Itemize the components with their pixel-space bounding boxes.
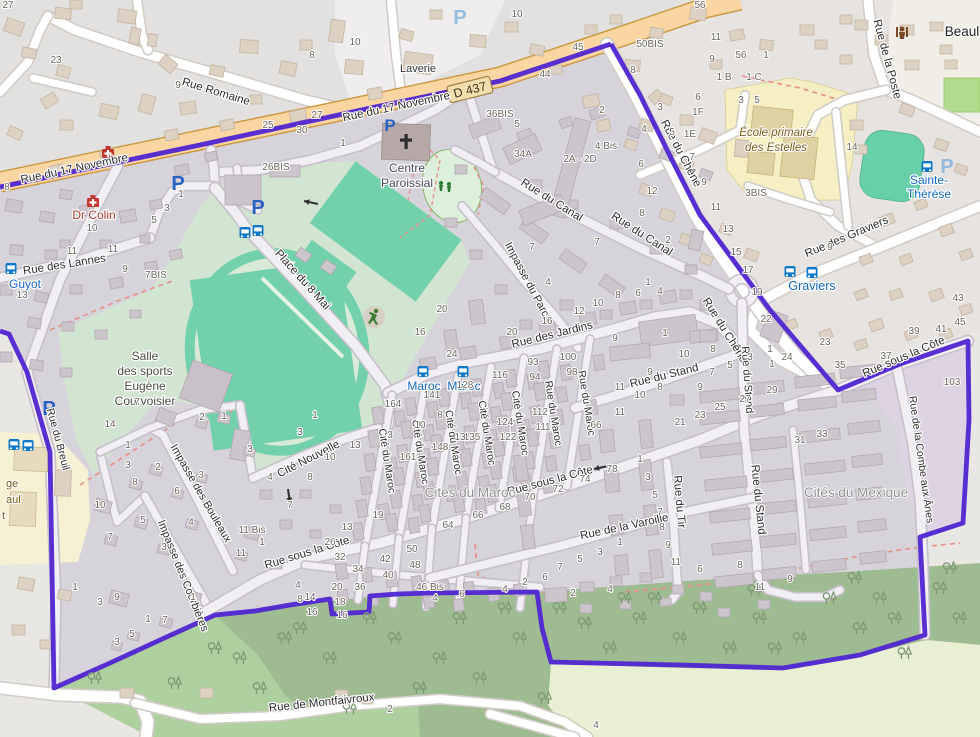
svg-text:Centre: Centre: [389, 161, 425, 175]
svg-text:10: 10: [634, 390, 646, 401]
svg-text:27: 27: [311, 110, 323, 121]
svg-text:1E: 1E: [684, 129, 697, 140]
svg-text:20: 20: [436, 304, 448, 315]
svg-text:1: 1: [190, 592, 196, 603]
svg-text:11: 11: [671, 557, 682, 568]
svg-text:122: 122: [500, 432, 517, 443]
svg-text:128: 128: [457, 380, 474, 391]
svg-text:2: 2: [387, 704, 393, 715]
svg-text:9: 9: [701, 177, 707, 188]
svg-text:14: 14: [104, 419, 116, 430]
svg-text:6: 6: [635, 288, 641, 299]
svg-text:1: 1: [145, 614, 151, 625]
svg-text:8: 8: [307, 472, 313, 483]
svg-text:16: 16: [414, 327, 426, 338]
svg-text:66: 66: [472, 510, 484, 521]
svg-text:13: 13: [722, 224, 734, 235]
svg-text:8: 8: [659, 522, 665, 533]
svg-text:8: 8: [437, 410, 443, 421]
svg-text:37: 37: [880, 351, 892, 362]
svg-text:103: 103: [944, 377, 961, 388]
svg-text:ge: ge: [6, 478, 18, 490]
svg-text:8: 8: [710, 344, 716, 355]
svg-text:17: 17: [742, 265, 754, 276]
svg-text:141: 141: [424, 390, 441, 401]
svg-text:19: 19: [372, 510, 384, 521]
svg-text:P: P: [453, 7, 466, 29]
svg-text:1: 1: [769, 359, 775, 370]
svg-text:11 Bis: 11 Bis: [238, 525, 265, 536]
svg-text:66: 66: [590, 420, 602, 431]
svg-text:8: 8: [297, 594, 303, 605]
svg-text:43: 43: [952, 293, 964, 304]
svg-text:5: 5: [577, 554, 583, 565]
svg-text:3: 3: [114, 637, 120, 648]
svg-text:7: 7: [557, 562, 563, 573]
svg-text:8: 8: [630, 65, 636, 76]
svg-text:4: 4: [545, 277, 551, 288]
svg-text:56: 56: [735, 50, 747, 61]
svg-text:10: 10: [349, 37, 361, 48]
svg-text:78: 78: [606, 464, 618, 475]
svg-text:100: 100: [560, 352, 577, 363]
svg-text:2A - 2D: 2A - 2D: [563, 154, 596, 165]
svg-text:École primaire: École primaire: [739, 126, 813, 139]
svg-text:7: 7: [134, 397, 140, 408]
svg-text:20: 20: [331, 582, 343, 593]
svg-text:5: 5: [669, 127, 675, 138]
svg-text:Guyot: Guyot: [9, 277, 42, 291]
svg-text:70: 70: [524, 492, 536, 503]
svg-text:3: 3: [738, 95, 744, 106]
svg-text:5: 5: [727, 360, 733, 371]
svg-text:30: 30: [296, 125, 308, 136]
svg-text:3: 3: [125, 460, 131, 471]
svg-text:1: 1: [178, 189, 184, 200]
svg-text:6: 6: [695, 92, 701, 103]
svg-text:41: 41: [935, 324, 947, 335]
svg-text:Graviers: Graviers: [788, 279, 835, 293]
svg-text:Paroissial: Paroissial: [381, 176, 433, 190]
svg-text:2: 2: [665, 235, 671, 246]
svg-text:34: 34: [352, 564, 364, 575]
svg-text:6: 6: [459, 589, 465, 600]
svg-text:Sainte-: Sainte-: [910, 173, 948, 187]
svg-text:Courvoisier: Courvoisier: [115, 394, 176, 408]
svg-text:aul: aul: [6, 494, 21, 506]
svg-text:9: 9: [612, 333, 618, 344]
svg-text:25: 25: [262, 120, 274, 131]
svg-text:50BIS: 50BIS: [636, 39, 664, 50]
svg-text:8: 8: [657, 382, 663, 393]
svg-text:5: 5: [754, 95, 760, 106]
svg-text:7: 7: [709, 367, 715, 378]
svg-text:4: 4: [607, 584, 613, 595]
svg-text:11: 11: [67, 246, 78, 257]
svg-text:32: 32: [334, 552, 346, 563]
svg-text:3: 3: [297, 427, 303, 438]
svg-text:12: 12: [646, 186, 658, 197]
svg-text:7: 7: [657, 507, 663, 518]
svg-text:27: 27: [2, 0, 14, 11]
svg-text:3: 3: [657, 102, 663, 113]
svg-text:4: 4: [432, 593, 438, 604]
svg-text:45: 45: [572, 42, 584, 53]
svg-text:14: 14: [846, 142, 858, 153]
svg-text:25: 25: [714, 402, 726, 413]
svg-text:Cités du Maroc: Cités du Maroc: [425, 485, 516, 500]
svg-text:26BIS: 26BIS: [262, 162, 290, 173]
svg-text:7BIS: 7BIS: [145, 270, 167, 281]
svg-text:8: 8: [737, 560, 743, 571]
svg-text:5: 5: [129, 629, 135, 640]
svg-text:13: 13: [16, 290, 28, 301]
svg-text:8: 8: [132, 477, 138, 488]
svg-text:33: 33: [816, 429, 828, 440]
svg-text:3: 3: [747, 352, 753, 363]
svg-text:23: 23: [50, 55, 62, 66]
svg-text:40: 40: [382, 570, 394, 581]
svg-text:36: 36: [354, 582, 366, 593]
svg-text:des Estelles: des Estelles: [745, 142, 807, 154]
svg-text:161: 161: [400, 452, 417, 463]
svg-text:16: 16: [306, 607, 318, 618]
svg-text:1F: 1F: [692, 107, 704, 118]
svg-text:24: 24: [781, 352, 793, 363]
svg-text:74: 74: [579, 474, 591, 485]
svg-text:P: P: [251, 197, 264, 219]
svg-text:10: 10: [324, 452, 336, 463]
svg-text:1: 1: [767, 344, 773, 355]
svg-text:6: 6: [638, 159, 644, 170]
svg-text:10: 10: [94, 500, 106, 511]
svg-text:3BIS: 3BIS: [745, 188, 767, 199]
svg-text:3: 3: [161, 542, 167, 553]
svg-text:11: 11: [711, 202, 722, 213]
svg-text:44: 44: [539, 69, 551, 80]
svg-text:10: 10: [414, 420, 426, 431]
svg-text:72: 72: [552, 484, 564, 495]
svg-text:1: 1: [340, 138, 346, 149]
svg-text:35: 35: [834, 360, 846, 371]
svg-text:164: 164: [385, 399, 402, 410]
svg-text:11: 11: [755, 582, 766, 593]
svg-text:Laverie: Laverie: [400, 63, 436, 75]
svg-text:13: 13: [454, 432, 466, 443]
svg-text:1: 1: [763, 50, 769, 61]
svg-text:2: 2: [522, 577, 528, 588]
svg-text:11: 11: [615, 382, 626, 393]
svg-text:29: 29: [766, 385, 778, 396]
svg-text:11: 11: [236, 548, 247, 559]
svg-text:1: 1: [617, 537, 623, 548]
svg-text:93: 93: [527, 357, 539, 368]
svg-text:1: 1: [662, 328, 668, 339]
svg-text:8: 8: [615, 290, 621, 301]
svg-text:8: 8: [639, 208, 645, 219]
svg-text:56: 56: [694, 0, 706, 11]
svg-text:2: 2: [570, 588, 576, 599]
svg-text:1: 1: [637, 454, 643, 465]
svg-text:13: 13: [341, 522, 353, 533]
svg-text:9: 9: [709, 54, 715, 65]
svg-text:6: 6: [542, 572, 548, 583]
svg-text:16: 16: [336, 610, 348, 621]
svg-text:4 Bis: 4 Bis: [595, 141, 617, 152]
svg-text:1: 1: [645, 277, 651, 288]
svg-text:9: 9: [175, 80, 181, 91]
svg-text:6: 6: [697, 564, 703, 575]
svg-text:1: 1: [72, 582, 78, 593]
svg-text:1: 1: [125, 440, 131, 451]
svg-text:34A: 34A: [514, 149, 532, 160]
svg-text:15: 15: [730, 247, 742, 258]
svg-text:1: 1: [221, 411, 227, 422]
svg-text:3: 3: [164, 203, 170, 214]
svg-text:2: 2: [155, 462, 161, 473]
svg-text:7: 7: [529, 242, 535, 253]
svg-text:31: 31: [794, 435, 806, 446]
svg-text:Thérèse: Thérèse: [907, 187, 951, 201]
svg-text:P: P: [384, 116, 395, 135]
svg-text:4: 4: [188, 517, 194, 528]
svg-text:4: 4: [267, 472, 273, 483]
svg-text:26: 26: [324, 537, 336, 548]
svg-text:3: 3: [97, 597, 103, 608]
svg-text:9: 9: [122, 264, 128, 275]
svg-text:20: 20: [506, 327, 518, 338]
svg-text:5: 5: [514, 119, 520, 130]
svg-text:68: 68: [499, 502, 511, 513]
svg-text:45: 45: [954, 317, 966, 328]
svg-text:1: 1: [312, 410, 318, 421]
svg-text:9: 9: [114, 592, 120, 603]
svg-text:3: 3: [387, 430, 393, 441]
svg-text:12: 12: [573, 306, 585, 317]
svg-text:23: 23: [819, 337, 831, 348]
svg-text:36BIS: 36BIS: [486, 109, 514, 120]
svg-text:3: 3: [597, 547, 603, 558]
svg-text:21: 21: [674, 417, 686, 428]
svg-text:148: 148: [432, 442, 449, 453]
svg-text:10: 10: [511, 9, 523, 20]
svg-text:5: 5: [151, 215, 157, 226]
svg-text:11: 11: [615, 407, 626, 418]
svg-text:24: 24: [446, 349, 458, 360]
svg-text:94: 94: [529, 372, 541, 383]
svg-text:Cités du Mexique: Cités du Mexique: [804, 485, 908, 500]
svg-text:64: 64: [442, 520, 454, 531]
svg-text:7: 7: [287, 500, 293, 511]
svg-text:50: 50: [406, 544, 418, 555]
svg-text:112: 112: [532, 407, 548, 418]
svg-text:9: 9: [665, 540, 671, 551]
svg-text:3: 3: [645, 472, 651, 483]
svg-text:2: 2: [599, 105, 605, 116]
svg-text:Salle: Salle: [132, 349, 159, 363]
svg-text:6: 6: [174, 486, 180, 497]
svg-text:10: 10: [86, 223, 98, 234]
svg-text:7: 7: [107, 532, 113, 543]
svg-text:98: 98: [566, 367, 578, 378]
svg-text:7: 7: [162, 615, 168, 626]
svg-text:18: 18: [334, 597, 346, 608]
svg-text:1 B: 1 B: [716, 72, 731, 83]
svg-text:111: 111: [535, 422, 551, 433]
svg-text:11: 11: [711, 32, 722, 43]
svg-text:Eugène: Eugène: [124, 379, 166, 393]
svg-text:48: 48: [409, 560, 421, 571]
svg-text:11: 11: [108, 244, 119, 255]
svg-text:27: 27: [739, 394, 751, 405]
svg-text:42: 42: [379, 554, 391, 565]
svg-text:14: 14: [304, 592, 316, 603]
svg-text:4: 4: [295, 580, 301, 591]
svg-text:16: 16: [541, 316, 553, 327]
svg-text:7: 7: [594, 237, 600, 248]
svg-text:135: 135: [464, 432, 481, 443]
svg-text:9: 9: [647, 367, 653, 378]
svg-text:3: 3: [198, 470, 204, 481]
svg-text:1: 1: [259, 537, 265, 548]
svg-text:46 Bis: 46 Bis: [416, 582, 444, 593]
svg-text:Dr Colin: Dr Colin: [72, 208, 115, 222]
svg-text:10: 10: [592, 298, 604, 309]
svg-text:5: 5: [140, 515, 146, 526]
svg-text:7: 7: [689, 152, 695, 163]
svg-text:4: 4: [502, 584, 508, 595]
svg-text:8: 8: [309, 50, 315, 61]
svg-text:19: 19: [751, 287, 763, 298]
svg-text:4: 4: [641, 124, 647, 135]
svg-text:t: t: [2, 510, 5, 522]
svg-text:2: 2: [199, 412, 205, 423]
svg-text:39: 39: [908, 326, 920, 337]
svg-text:4: 4: [657, 286, 663, 297]
svg-text:3: 3: [247, 444, 253, 455]
svg-text:116: 116: [492, 370, 508, 381]
svg-text:13: 13: [349, 440, 361, 451]
svg-text:des sports: des sports: [117, 364, 172, 378]
svg-text:10: 10: [678, 349, 690, 360]
svg-text:1 C: 1 C: [746, 72, 762, 83]
svg-text:9: 9: [697, 382, 703, 393]
svg-text:124: 124: [497, 417, 514, 428]
svg-text:Beaul: Beaul: [945, 24, 980, 39]
svg-text:22: 22: [760, 314, 772, 325]
svg-text:9: 9: [827, 242, 833, 253]
svg-text:9: 9: [787, 574, 793, 585]
svg-text:4: 4: [593, 720, 599, 731]
svg-text:23: 23: [694, 410, 706, 421]
svg-text:5: 5: [652, 490, 658, 501]
svg-text:8: 8: [4, 182, 10, 193]
